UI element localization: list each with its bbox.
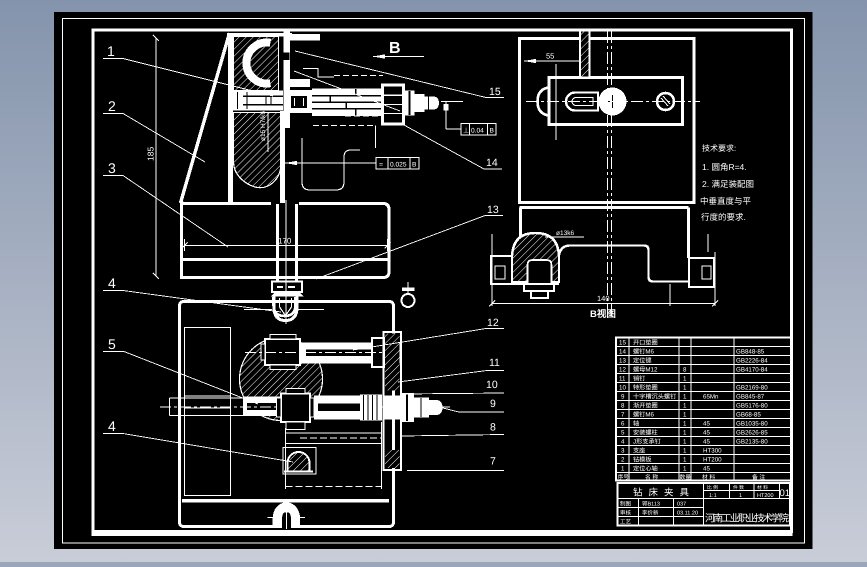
svg-text:工艺: 工艺 xyxy=(620,519,632,526)
svg-text:12: 12 xyxy=(619,367,626,374)
svg-text:名 称: 名 称 xyxy=(645,474,658,481)
svg-text:螺钉M6: 螺钉M6 xyxy=(633,411,655,419)
svg-text:ø13k6: ø13k6 xyxy=(556,230,574,237)
svg-text:轴: 轴 xyxy=(633,420,639,428)
svg-text:3: 3 xyxy=(621,448,625,455)
svg-text:7: 7 xyxy=(490,456,496,468)
svg-text:8: 8 xyxy=(621,403,625,410)
svg-text:1: 1 xyxy=(683,466,687,473)
svg-text:10: 10 xyxy=(486,379,498,391)
svg-text:李价新: 李价新 xyxy=(642,509,659,516)
svg-text:9: 9 xyxy=(490,398,496,410)
svg-text:河南工业职业技术学院: 河南工业职业技术学院 xyxy=(705,513,789,525)
svg-text:GB2135-80: GB2135-80 xyxy=(736,439,768,446)
svg-text:GB2626-85: GB2626-85 xyxy=(736,430,768,437)
svg-text:1: 1 xyxy=(683,376,687,383)
svg-text:郭B113: 郭B113 xyxy=(642,500,660,507)
svg-text:65Mn: 65Mn xyxy=(703,394,719,401)
svg-text:B视图: B视图 xyxy=(590,308,616,320)
svg-text:1:1: 1:1 xyxy=(709,493,717,499)
svg-text:14: 14 xyxy=(619,349,626,356)
svg-text:序号: 序号 xyxy=(618,474,630,481)
svg-text:材 料: 材 料 xyxy=(702,474,715,481)
svg-text:定位键: 定位键 xyxy=(633,357,652,365)
svg-text:10: 10 xyxy=(619,385,626,392)
svg-text:行度的要求.: 行度的要求. xyxy=(701,212,746,222)
svg-text:1: 1 xyxy=(683,385,687,392)
svg-text:技术要求:: 技术要求: xyxy=(702,144,736,153)
svg-text:2: 2 xyxy=(621,457,625,464)
svg-text:9: 9 xyxy=(621,394,625,401)
svg-text:13: 13 xyxy=(619,358,626,365)
svg-text:GB2226-84: GB2226-84 xyxy=(736,358,768,365)
svg-text:销钉: 销钉 xyxy=(633,375,645,383)
svg-text:B: B xyxy=(412,161,417,168)
svg-text:1: 1 xyxy=(683,421,687,428)
svg-text:螺母M12: 螺母M12 xyxy=(633,366,658,374)
svg-text:定位心轴: 定位心轴 xyxy=(633,465,658,473)
svg-text:45: 45 xyxy=(703,430,710,437)
svg-text:01: 01 xyxy=(780,488,791,499)
svg-text:2: 2 xyxy=(108,98,116,114)
svg-text:140: 140 xyxy=(597,294,610,303)
svg-text:钻床夹具: 钻床夹具 xyxy=(633,487,695,499)
svg-text:备 注: 备 注 xyxy=(752,474,765,481)
svg-text:1: 1 xyxy=(683,439,687,446)
svg-text:=: = xyxy=(379,161,383,168)
svg-text:1. 圆角R=4.: 1. 圆角R=4. xyxy=(702,162,747,172)
svg-text:4: 4 xyxy=(621,439,625,446)
svg-text:制图: 制图 xyxy=(620,500,632,507)
svg-text:GB845-87: GB845-87 xyxy=(736,394,765,401)
svg-text:8: 8 xyxy=(490,422,496,434)
svg-text:45: 45 xyxy=(703,421,710,428)
svg-text:03.11.20: 03.11.20 xyxy=(677,510,698,516)
svg-text:11: 11 xyxy=(489,357,500,369)
svg-text:0.025: 0.025 xyxy=(390,161,407,168)
svg-text:GB2169-80: GB2169-80 xyxy=(736,385,768,392)
svg-text:螺钉M6: 螺钉M6 xyxy=(633,348,655,356)
svg-text:1: 1 xyxy=(683,457,687,464)
svg-text:14: 14 xyxy=(486,157,498,169)
svg-text:1: 1 xyxy=(739,493,742,499)
svg-text:GB848-85: GB848-85 xyxy=(736,349,765,356)
svg-text:HT200: HT200 xyxy=(703,457,722,464)
svg-text:1: 1 xyxy=(683,412,687,419)
svg-text:件 数: 件 数 xyxy=(733,484,744,491)
svg-text:十字槽沉头螺钉: 十字槽沉头螺钉 xyxy=(633,393,676,401)
svg-text:HT300: HT300 xyxy=(703,448,722,455)
svg-text:037: 037 xyxy=(677,501,686,507)
svg-text:GB5176-80: GB5176-80 xyxy=(736,403,768,410)
svg-text:12: 12 xyxy=(487,317,499,329)
svg-text:45: 45 xyxy=(703,439,710,446)
svg-text:1: 1 xyxy=(683,394,687,401)
svg-text:2. 满足装配图: 2. 满足装配图 xyxy=(702,179,754,189)
svg-text:开口垫圈: 开口垫圈 xyxy=(633,339,658,347)
svg-text:11: 11 xyxy=(619,376,626,383)
svg-text:比 例: 比 例 xyxy=(707,484,718,491)
svg-text:⊥: ⊥ xyxy=(463,127,469,134)
svg-text:4: 4 xyxy=(108,418,116,434)
svg-text:渐开垫圈: 渐开垫圈 xyxy=(633,402,658,410)
svg-text:5: 5 xyxy=(621,430,625,437)
svg-text:4: 4 xyxy=(108,275,116,291)
svg-text:审核: 审核 xyxy=(620,509,632,516)
svg-text:1: 1 xyxy=(683,403,687,410)
svg-text:0.04: 0.04 xyxy=(471,127,484,134)
svg-text:1: 1 xyxy=(683,448,687,455)
svg-text:3: 3 xyxy=(108,160,116,176)
svg-text:8: 8 xyxy=(683,367,687,374)
svg-text:材 料: 材 料 xyxy=(757,484,768,491)
svg-text:GB4170-84: GB4170-84 xyxy=(736,367,768,374)
svg-text:特形垫圈: 特形垫圈 xyxy=(633,384,658,392)
svg-text:HT200: HT200 xyxy=(757,493,774,499)
svg-text:数量: 数量 xyxy=(680,474,692,481)
svg-text:5: 5 xyxy=(108,336,116,352)
svg-text:B: B xyxy=(389,40,401,57)
svg-text:J形支承钉: J形支承钉 xyxy=(633,438,661,446)
svg-text:185: 185 xyxy=(146,147,156,161)
svg-text:55: 55 xyxy=(546,52,554,61)
svg-text:ø15 H7/k6: ø15 H7/k6 xyxy=(260,111,267,141)
svg-text:1: 1 xyxy=(107,43,115,59)
svg-text:安装螺柱: 安装螺柱 xyxy=(633,429,658,437)
svg-text:钻模板: 钻模板 xyxy=(633,456,652,464)
svg-text:1: 1 xyxy=(621,466,625,473)
svg-text:中垂直度与平: 中垂直度与平 xyxy=(700,196,752,206)
svg-text:7: 7 xyxy=(621,412,625,419)
svg-text:1: 1 xyxy=(683,430,687,437)
svg-text:170: 170 xyxy=(278,237,292,246)
svg-text:13: 13 xyxy=(487,204,499,216)
svg-text:支座: 支座 xyxy=(633,447,645,455)
svg-text:GB68-85: GB68-85 xyxy=(736,412,761,419)
svg-text:45: 45 xyxy=(703,466,710,473)
svg-text:15: 15 xyxy=(619,340,626,347)
svg-text:GB1035-80: GB1035-80 xyxy=(736,421,768,428)
svg-text:6: 6 xyxy=(621,421,625,428)
svg-text:15: 15 xyxy=(489,86,501,98)
svg-text:B: B xyxy=(490,127,495,134)
